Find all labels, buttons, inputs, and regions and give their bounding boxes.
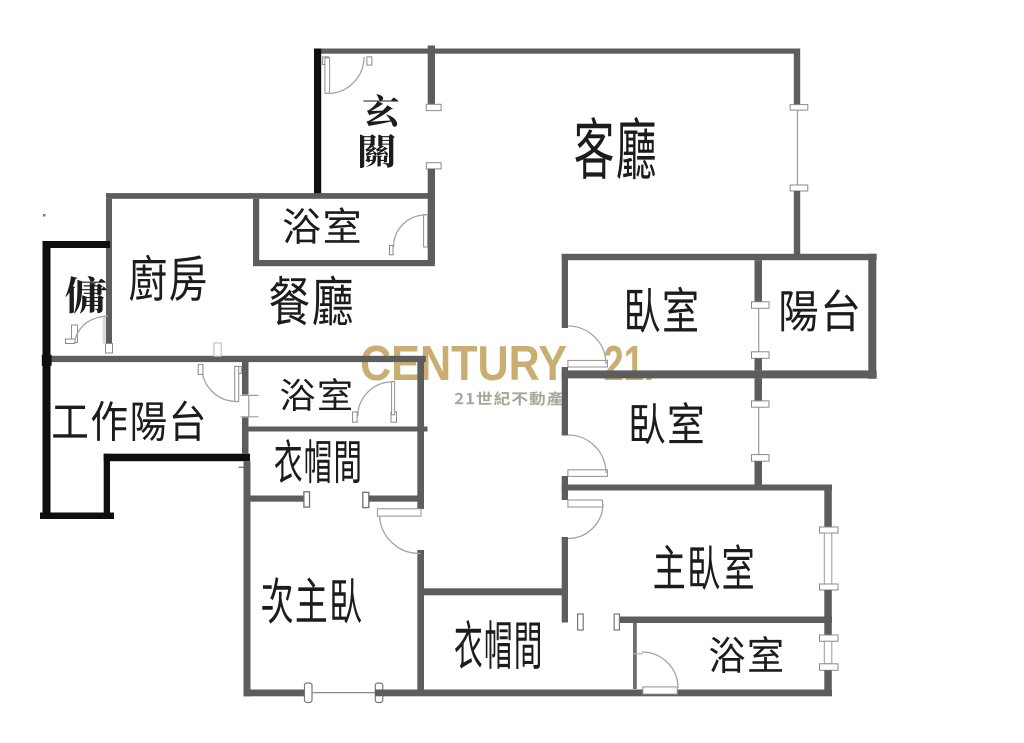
- svg-text:CENTURY: CENTURY: [360, 337, 567, 391]
- svg-text:21.: 21.: [604, 337, 655, 391]
